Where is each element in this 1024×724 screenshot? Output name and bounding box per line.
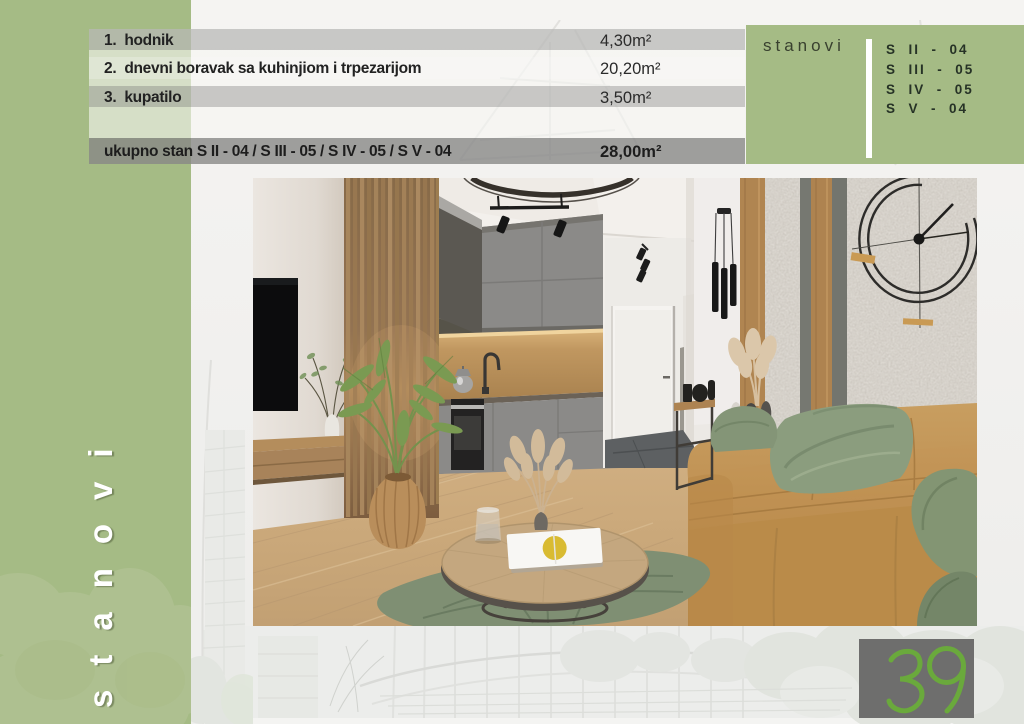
svg-text:stanovi: stanovi [82,440,119,708]
